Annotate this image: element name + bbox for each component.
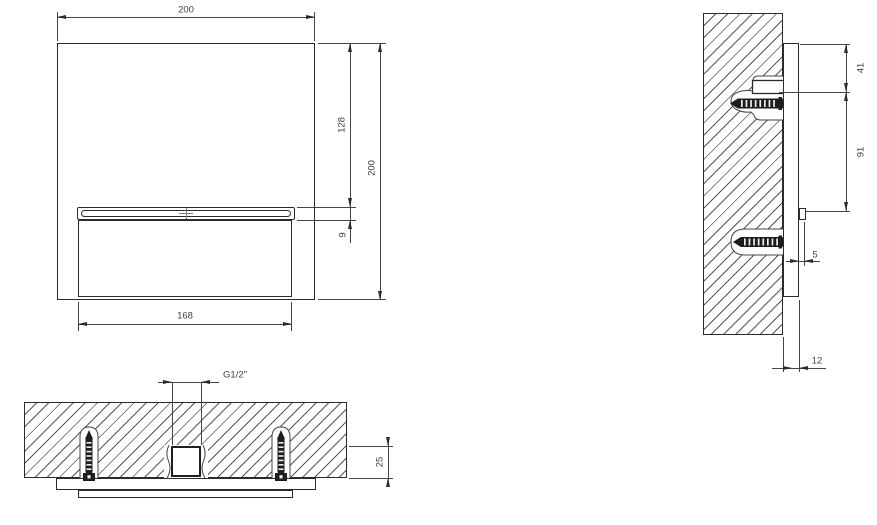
arrowhead bbox=[348, 198, 352, 207]
dim-label-front-width: 200 bbox=[178, 5, 194, 15]
arrowhead bbox=[378, 43, 382, 52]
dim-label-spout-width: 168 bbox=[177, 311, 193, 321]
inlet-port bbox=[171, 446, 201, 477]
dimension-line bbox=[350, 43, 351, 207]
arrowhead bbox=[283, 322, 292, 326]
arrowhead bbox=[348, 220, 352, 229]
dim-label-slot-offset: 128 bbox=[337, 117, 347, 133]
right-wall-plug-screw bbox=[269, 423, 293, 482]
arrowhead bbox=[804, 259, 813, 263]
dimension-line bbox=[846, 92, 847, 211]
dim-label-slot-height: 9 bbox=[338, 232, 348, 237]
arrowhead bbox=[306, 15, 315, 19]
left-wall-plug-screw bbox=[77, 423, 101, 482]
plan-spout-lip-band bbox=[78, 490, 293, 498]
dim-label-anchor-to-spout: 91 bbox=[856, 147, 866, 158]
extension-line bbox=[318, 299, 386, 300]
dimension-line bbox=[57, 17, 315, 18]
dim-label-front-height: 200 bbox=[367, 160, 377, 176]
dimension-line bbox=[78, 324, 292, 325]
front-spout-panel bbox=[78, 220, 292, 297]
arrowhead bbox=[78, 322, 87, 326]
slot-centerline-tick bbox=[179, 213, 193, 214]
arrowhead bbox=[386, 478, 390, 487]
arrowhead bbox=[378, 291, 382, 300]
extension-line bbox=[349, 446, 393, 447]
extension-line bbox=[799, 300, 800, 372]
side-spout-lip bbox=[799, 208, 806, 221]
dim-label-inlet-thread: G1/2" bbox=[223, 370, 247, 380]
arrowhead bbox=[57, 15, 66, 19]
extension-line bbox=[297, 207, 356, 208]
extension-line bbox=[78, 302, 79, 331]
extension-line bbox=[201, 382, 202, 445]
dimension-line bbox=[380, 43, 381, 300]
dim-label-recess-depth: 25 bbox=[375, 457, 385, 468]
extension-line bbox=[800, 44, 850, 45]
dim-label-lip-depth: 5 bbox=[812, 250, 817, 260]
arrowhead bbox=[799, 366, 808, 370]
lower-wall-plug-screw bbox=[727, 226, 787, 258]
arrowhead bbox=[201, 380, 210, 384]
arrowhead bbox=[163, 380, 172, 384]
dim-label-plate-depth: 12 bbox=[812, 356, 823, 366]
arrowhead bbox=[783, 366, 792, 370]
dim-label-top-to-anchor: 41 bbox=[856, 63, 866, 74]
arrowhead bbox=[844, 83, 848, 92]
arrowhead bbox=[348, 43, 352, 52]
extension-line bbox=[318, 43, 386, 44]
arrowhead bbox=[790, 259, 799, 263]
arrowhead bbox=[844, 92, 848, 101]
extension-line bbox=[779, 92, 850, 93]
arrowhead bbox=[844, 202, 848, 211]
extension-line bbox=[806, 211, 850, 212]
side-wall-section bbox=[703, 13, 783, 335]
extension-line bbox=[291, 302, 292, 331]
arrowhead bbox=[386, 437, 390, 446]
extension-line bbox=[172, 382, 173, 445]
upper-wall-plug-screw bbox=[727, 72, 787, 125]
arrowhead bbox=[844, 44, 848, 53]
technical-drawing: 200 128 9 200 bbox=[0, 0, 877, 525]
